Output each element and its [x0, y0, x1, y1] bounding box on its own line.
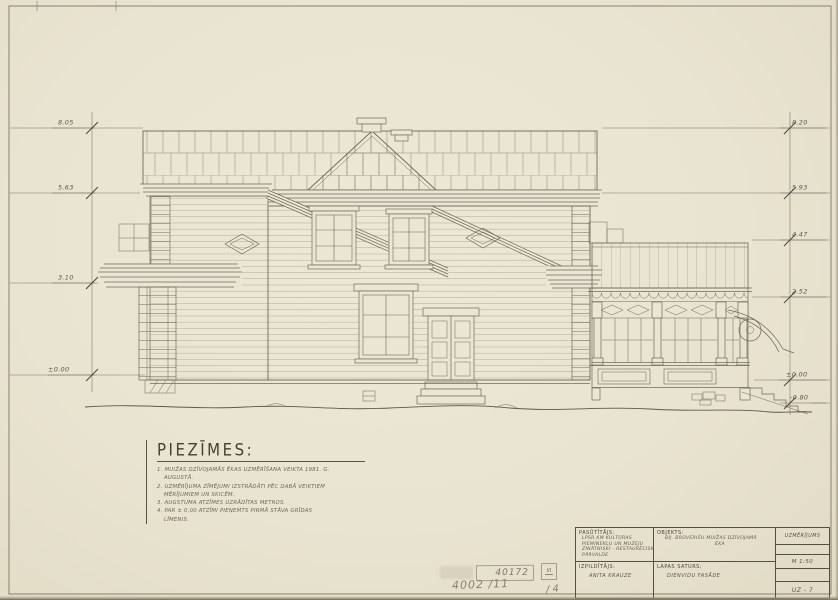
upper-window-2 [385, 209, 433, 269]
veranda-fretwork [592, 302, 748, 318]
notes-underline [157, 461, 365, 462]
chimney-1 [357, 118, 386, 132]
document-number: 4002 /11 [452, 577, 510, 592]
object-cell: OBJEKTS: BIJ. BRŪVERIŠU MUIŽAS DZĪVOJAMĀ… [654, 528, 775, 562]
scale-cell: M 1:50 [776, 555, 829, 569]
dim-right-eaves: 5.93 [792, 184, 808, 192]
sheet-content-value: DIENVIDU FASĀDE [657, 570, 773, 579]
note-line: 4. PAR ± 0.00 ATZĪMI PIEŅEMTS PIRMĀ STĀV… [157, 507, 385, 515]
title-block-middle-column: OBJEKTS: BIJ. BRŪVERIŠU MUIŽAS DZĪVOJAMĀ… [654, 528, 776, 598]
left-cornice [140, 184, 272, 196]
sheet-number: / 4 [546, 584, 560, 596]
dim-right-ground: -0.80 [790, 394, 808, 402]
executor-name: ANITA KRAUZE [579, 570, 651, 579]
client-line: ZINĀTNISKI - RESTAURĒCISKĀ [579, 547, 651, 553]
title-block: PASŪTĪTĀJS: LPSR KM KULTŪRAS PIEMINEKĻU … [575, 527, 830, 599]
note-line: AUGUSTĀ. [164, 474, 385, 482]
door-steps [417, 382, 485, 404]
right-corner-quoins [572, 206, 590, 380]
title-block-left-column: PASŪTĪTĀJS: LPSR KM KULTŪRAS PIEMINEKĻU … [576, 528, 654, 598]
lower-window [354, 284, 418, 363]
veranda-junction [589, 222, 623, 243]
left-lower-quoins [139, 287, 176, 380]
dim-right-ridge: 8.20 [792, 119, 808, 127]
veranda [588, 222, 812, 414]
object-line: ĒKA [657, 542, 773, 548]
client-line: PĀRVALDE [579, 553, 651, 559]
ground-line [85, 406, 812, 413]
veranda-balustrade [590, 366, 750, 401]
note-line: LĪMENIS. [164, 516, 385, 524]
base-block [145, 380, 175, 393]
drawing-sheet: 8.05 5.63 3.10 ±0.00 8.20 5.93 4.47 2.52… [0, 0, 838, 600]
facade-drawing: 8.05 5.63 3.10 ±0.00 8.20 5.93 4.47 2.52… [0, 0, 838, 600]
dim-right-porch-frieze: 2.52 [792, 288, 808, 296]
notes-block: PIEZĪMES: 1. MUIŽAS DZĪVOJAMĀS ĒKAS UZMĒ… [146, 440, 385, 524]
note-line: 2. UZMĒRĪJUMA ZĪMĒJUMI IZSTRĀDĀTI PĒC DA… [157, 483, 385, 491]
stone-pile [692, 392, 725, 405]
veranda-columns [592, 318, 748, 365]
left-upper-quoins [151, 196, 170, 264]
erased-stamp [440, 566, 473, 579]
notes-lines: 1. MUIŽAS DZĪVOJAMĀS ĒKAS UZMĒRĪŠANA VEI… [157, 466, 385, 524]
empty-cell [776, 569, 829, 582]
foundation-vent [363, 391, 375, 401]
empty-cell [776, 545, 829, 555]
dim-left-zero: ±0.00 [48, 366, 69, 374]
dim-right-zero: ±0.00 [786, 371, 807, 379]
left-wing [98, 184, 272, 393]
dim-right-porch-roof: 4.47 [792, 231, 808, 239]
annex-detail [119, 224, 149, 251]
dim-left-eaves: 5.63 [58, 184, 74, 192]
executor-cell: IZPILDĪTĀJS: ANITA KRAUZE [576, 562, 653, 598]
note-line: 3. AUGSTUMA ATZĪMES UZRĀDĪTAS METROS. [157, 499, 385, 507]
roman-numeral-box: III [541, 563, 557, 580]
roman-numeral: III [545, 568, 554, 575]
main-cornice [264, 190, 602, 206]
veranda-scallops [592, 292, 748, 301]
left-mid-cornice [98, 264, 242, 287]
notes-heading: PIEZĪMES: [157, 440, 254, 460]
veranda-glazing [592, 318, 750, 363]
plinth-line [150, 380, 590, 384]
paper-edge-bottom [0, 596, 838, 600]
dim-left-ridge: 8.05 [58, 119, 74, 127]
veranda-roof [592, 243, 748, 288]
veranda-fascia [588, 288, 752, 292]
dim-left-cornice: 3.10 [58, 274, 74, 282]
note-line: MĒRĪJUMIEM UN SKICĒM. [164, 491, 385, 499]
note-line: 1. MUIŽAS DZĪVOJAMĀS ĒKAS UZMĒRĪŠANA VEI… [157, 466, 385, 474]
upper-window-1 [308, 206, 360, 269]
sheet-content-cell: LAPAS SATURS: DIENVIDU FASĀDE [654, 562, 775, 598]
main-roof [143, 131, 597, 190]
survey-type-cell: UZMĒRĪJUMS [776, 528, 829, 545]
object-line: BIJ. BRŪVERIŠU MUIŽAS DZĪVOJAMĀ [657, 536, 773, 542]
title-block-right-column: UZMĒRĪJUMS M 1:50 UZ - 7 [776, 528, 829, 598]
client-cell: PASŪTĪTĀJS: LPSR KM KULTŪRAS PIEMINEKĻU … [576, 528, 653, 562]
